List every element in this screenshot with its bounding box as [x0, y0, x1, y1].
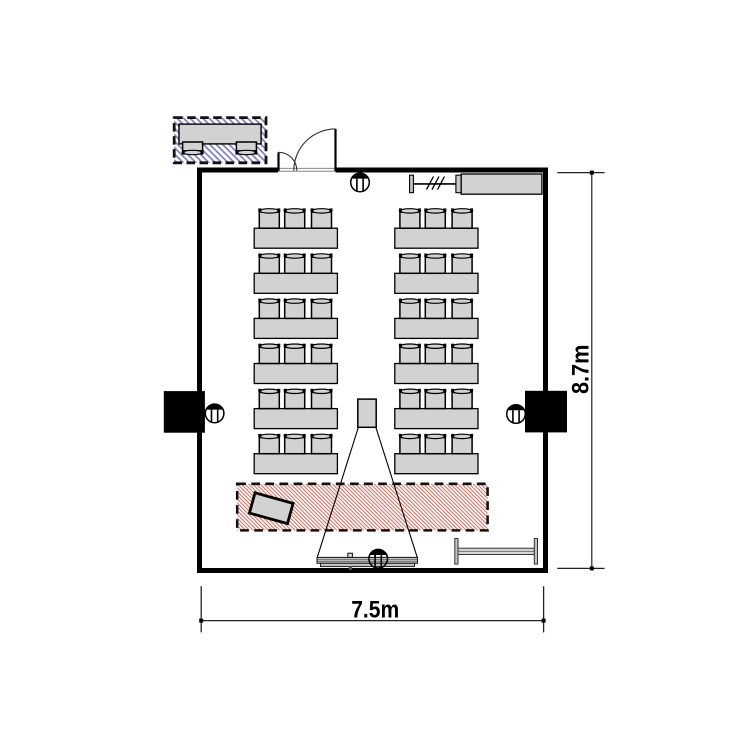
svg-text:8.7m: 8.7m	[568, 345, 595, 395]
svg-text:7.5m: 7.5m	[351, 596, 399, 623]
